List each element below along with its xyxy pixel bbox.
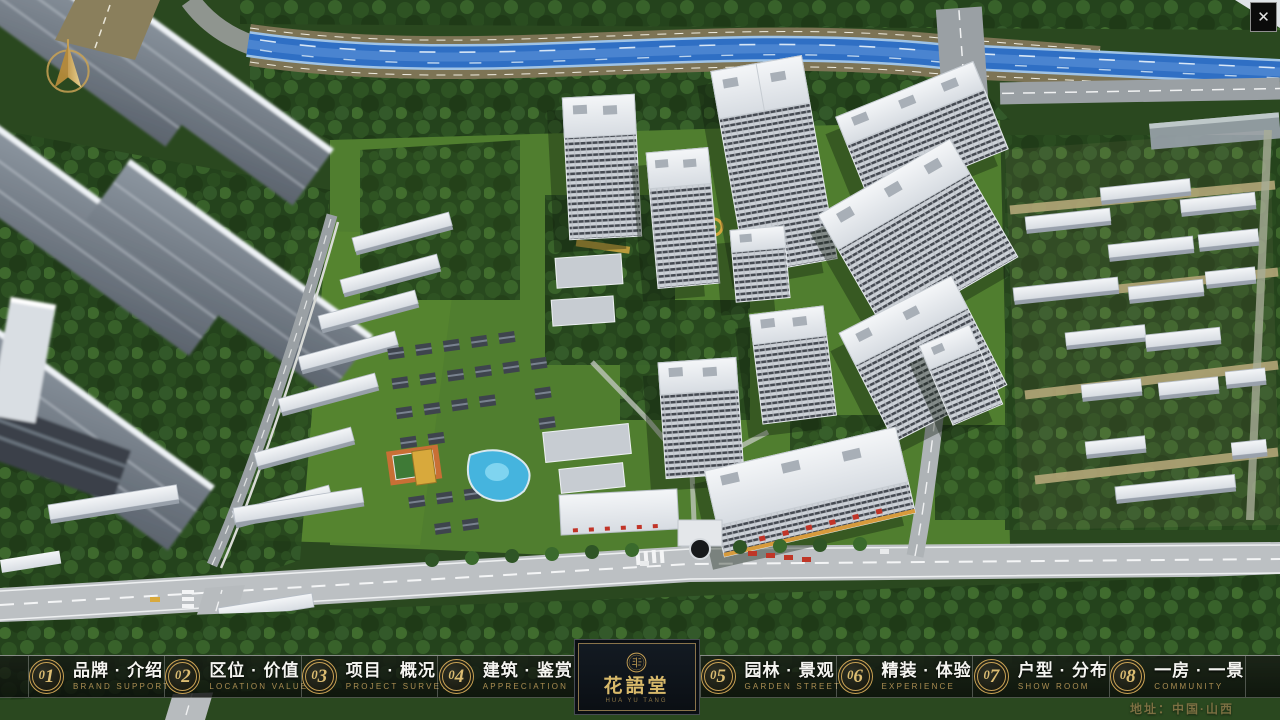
item-number-badge: 08 (1110, 659, 1145, 694)
menu-label-en: APPRECIATION (483, 682, 568, 691)
menu-label-en: SHOW ROOM (1018, 682, 1090, 691)
menu-label-en: EXPERIENCE (882, 682, 956, 691)
menu-label-zh: 精装 · 体验 (882, 662, 972, 681)
item-number: 03 (311, 667, 327, 686)
menu-label-en: PROJECT SURVEY (346, 682, 449, 691)
menu-item-garden-landscape[interactable]: 05 园林 · 景观GARDEN STREET (700, 656, 836, 697)
bottom-menu-bar: 01 品牌 · 介绍BRAND SUPPORT 02 区位 · 价值LOCATI… (0, 655, 1280, 698)
menu-item-architecture-appreciation[interactable]: 04 建筑 · 鉴赏APPRECIATION (437, 656, 573, 697)
menu-label-zh: 区位 · 价值 (209, 662, 299, 681)
item-number-badge: 04 (439, 659, 474, 694)
logo-tagline: HUA YU TANG (605, 698, 667, 704)
menu-label-en: BRAND SUPPORT (73, 682, 170, 691)
menu-label-en: LOCATION VALUE (209, 682, 308, 691)
menu-label-zh: 建筑 · 鉴赏 (483, 662, 573, 681)
item-number-badge: 02 (165, 659, 200, 694)
logo-title: 花語堂 (603, 677, 669, 696)
menu-label-zh: 户型 · 分布 (1018, 662, 1108, 681)
item-number-badge: 01 (29, 659, 64, 694)
item-number: 02 (175, 667, 191, 686)
menu-label-en: COMMUNITY (1154, 682, 1223, 691)
bar-divider (1245, 656, 1246, 697)
menu-item-one-room-one-view[interactable]: 08 一房 · 一景COMMUNITY (1109, 656, 1245, 697)
item-number: 07 (983, 667, 999, 686)
item-number: 06 (847, 667, 863, 686)
project-logo-panel[interactable]: 花語堂 HUA YU TANG (574, 639, 700, 715)
menu-label-en: GARDEN STREET (745, 682, 842, 691)
menu-item-location-value[interactable]: 02 区位 · 价值LOCATION VALUE (164, 656, 300, 697)
menu-item-decor-experience[interactable]: 06 精装 · 体验EXPERIENCE (836, 656, 972, 697)
item-number-badge: 07 (974, 659, 1009, 694)
presentation-stage: ✕ 地址：中国·山西 01 品牌 · 介绍BRAND SUPPORT 02 区位… (0, 0, 1280, 720)
menu-label-zh: 项目 · 概况 (346, 662, 436, 681)
compass-north-icon (40, 34, 96, 100)
address-label: 地址：中国·山西 (1130, 700, 1234, 717)
aerial-map-render[interactable] (0, 0, 1280, 720)
menu-item-project-survey[interactable]: 03 项目 · 概况PROJECT SURVEY (301, 656, 437, 697)
menu-label-zh: 一房 · 一景 (1154, 662, 1244, 681)
close-button[interactable]: ✕ (1250, 2, 1277, 32)
item-number: 05 (710, 667, 726, 686)
logo-seal-icon (624, 650, 649, 675)
menu-label-zh: 品牌 · 介绍 (73, 662, 163, 681)
menu-label-zh: 园林 · 景观 (745, 662, 835, 681)
item-number: 08 (1120, 667, 1136, 686)
item-number-badge: 06 (838, 659, 873, 694)
item-number: 04 (448, 667, 464, 686)
item-number-badge: 03 (302, 659, 337, 694)
menu-item-floorplan-distribution[interactable]: 07 户型 · 分布SHOW ROOM (972, 656, 1108, 697)
item-number: 01 (39, 667, 55, 686)
item-number-badge: 05 (701, 659, 736, 694)
menu-item-brand-intro[interactable]: 01 品牌 · 介绍BRAND SUPPORT (28, 656, 164, 697)
